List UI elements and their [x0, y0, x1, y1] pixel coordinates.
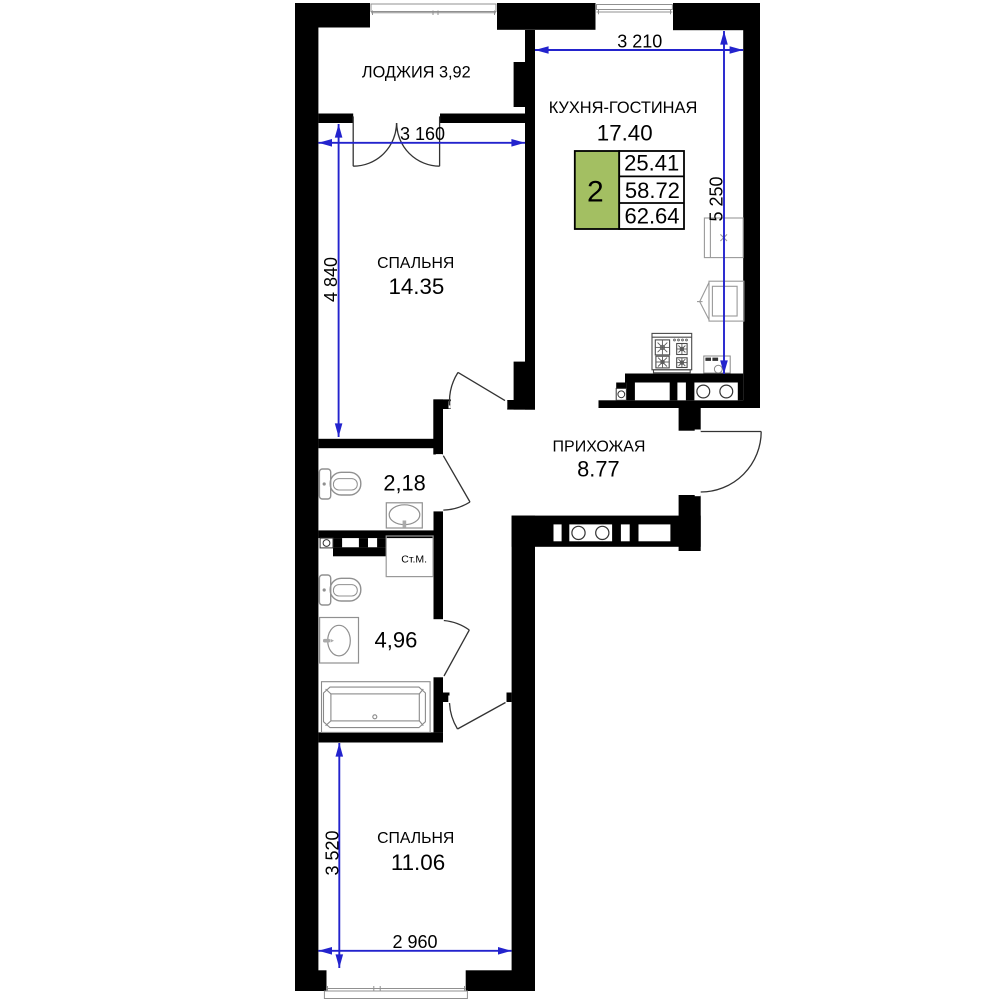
svg-text:СПАЛЬНЯ: СПАЛЬНЯ: [377, 830, 454, 847]
svg-text:3 520: 3 520: [322, 830, 342, 875]
svg-text:4 840: 4 840: [321, 257, 341, 302]
svg-text:3 160: 3 160: [400, 124, 445, 144]
svg-text:4,96: 4,96: [374, 628, 417, 653]
svg-text:14.35: 14.35: [389, 274, 445, 299]
svg-text:СПАЛЬНЯ: СПАЛЬНЯ: [377, 255, 454, 272]
svg-text:5 250: 5 250: [706, 176, 726, 221]
svg-text:8.77: 8.77: [577, 457, 619, 482]
svg-text:62.64: 62.64: [624, 204, 679, 229]
svg-text:11.06: 11.06: [391, 850, 445, 875]
svg-text:2: 2: [587, 176, 604, 209]
svg-text:2,18: 2,18: [383, 470, 425, 495]
svg-text:17.40: 17.40: [597, 121, 653, 146]
svg-text:58.72: 58.72: [625, 178, 680, 203]
svg-text:КУХНЯ-ГОСТИНАЯ: КУХНЯ-ГОСТИНАЯ: [549, 99, 698, 117]
svg-text:Ст.М.: Ст.М.: [401, 553, 427, 565]
svg-text:ПРИХОЖАЯ: ПРИХОЖАЯ: [553, 439, 646, 456]
svg-text:3 210: 3 210: [617, 32, 662, 52]
svg-text:ЛОДЖИЯ 3,92: ЛОДЖИЯ 3,92: [362, 64, 471, 82]
svg-text:25.41: 25.41: [624, 150, 679, 175]
svg-text:2 960: 2 960: [392, 932, 437, 952]
